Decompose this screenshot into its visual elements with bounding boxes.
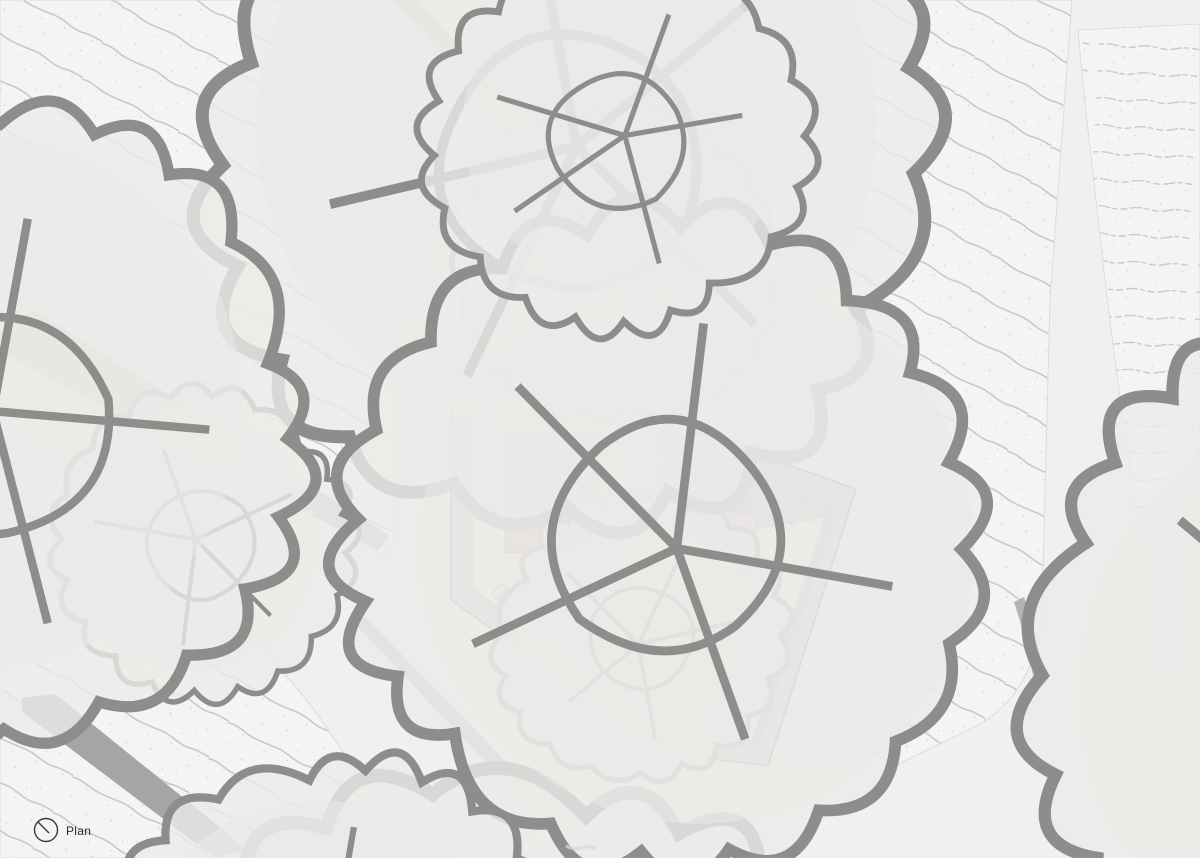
plan-label: Plan	[66, 824, 91, 838]
site-plan-drawing: Plan	[0, 0, 1200, 858]
site-plan-canvas: Plan	[0, 0, 1200, 858]
